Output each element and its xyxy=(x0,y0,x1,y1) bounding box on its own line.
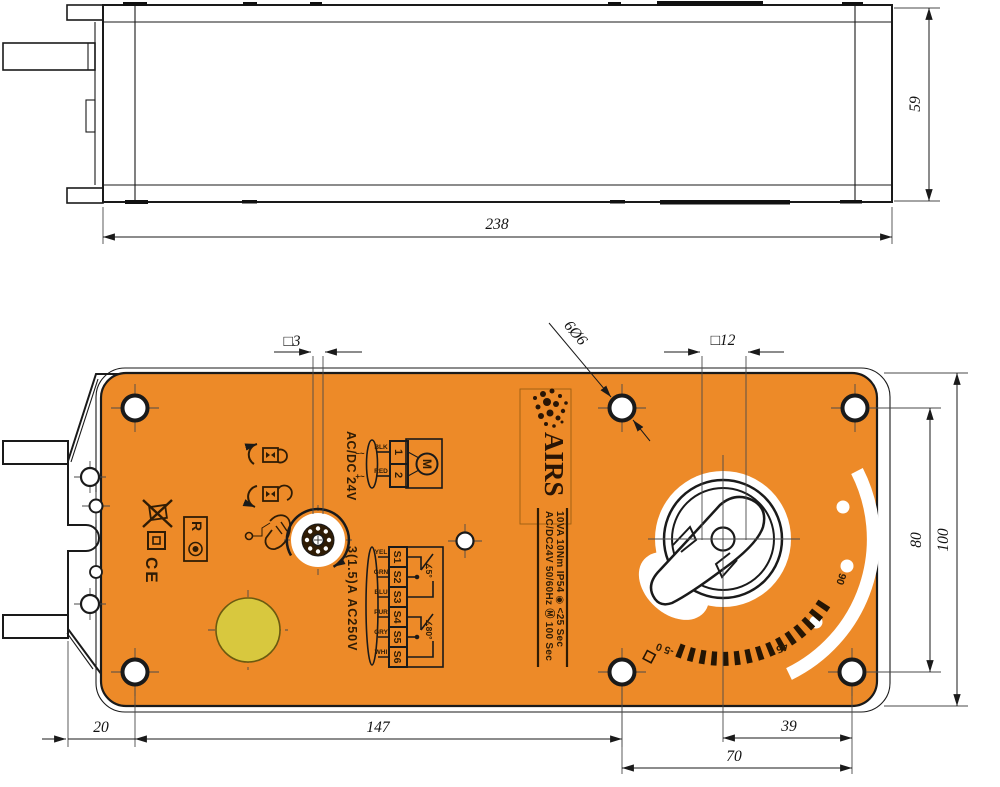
terminal-label: S2 xyxy=(391,571,403,584)
brand-name: AIRS xyxy=(539,432,569,497)
dim-square3-label: □3 xyxy=(283,333,300,350)
terminal-label: S3 xyxy=(391,591,403,604)
nameplate-line2: 10VA 10Nm IP54 ◉ <25 Sec xyxy=(554,511,565,647)
terminal-label: S1 xyxy=(391,551,403,564)
actuator-drawing: 238 59 xyxy=(0,0,1000,787)
top-view-tab-lower xyxy=(67,188,103,203)
bracket-foot xyxy=(86,100,95,132)
wire-label: BLU xyxy=(374,589,388,596)
wire-black-label: BLK xyxy=(374,444,388,451)
aux-rating: 3(1.5)A AC250V xyxy=(345,546,359,651)
dimension-100: 100 xyxy=(884,373,968,706)
dim-20-label: 20 xyxy=(93,719,109,736)
dim-square12-label: □12 xyxy=(711,332,736,349)
dim-39-label: 39 xyxy=(780,718,797,735)
terminal-label: S4 xyxy=(391,611,403,624)
top-view-tab-upper xyxy=(67,5,103,20)
switch-2-angle: ∡80° xyxy=(424,619,434,640)
terminal-label: S5 xyxy=(391,631,403,644)
wire-label: YEL xyxy=(375,549,388,556)
terminal-label: S6 xyxy=(391,651,403,664)
switch-1-angle: ∡5° xyxy=(424,562,434,578)
dim-holes-label: 6Ø6 xyxy=(560,317,590,349)
wire-label: WHI xyxy=(375,649,388,656)
dim-70-label: 70 xyxy=(726,748,742,765)
power-title: AC/DC 24V xyxy=(344,431,358,501)
technical-drawing-page: 238 59 xyxy=(0,0,1000,787)
motor-label: M xyxy=(420,459,434,469)
airs-logo: AIRS xyxy=(520,389,571,525)
dim-100-label: 100 xyxy=(935,528,952,552)
terminal-1-label: 1 xyxy=(392,449,404,455)
top-view: 238 59 xyxy=(3,1,940,244)
bracket-tab-lower xyxy=(3,615,68,638)
housing-outline xyxy=(103,5,892,202)
plus-mark: +~ xyxy=(355,472,365,481)
ce-mark: CE xyxy=(142,557,161,585)
bracket-tab-upper xyxy=(3,441,68,464)
dim-59-label: 59 xyxy=(907,96,924,112)
damper-shaft xyxy=(3,43,95,70)
housing-pads xyxy=(123,1,863,205)
wire-red-label: RED xyxy=(374,468,388,475)
wire-label: GRN xyxy=(374,569,389,576)
dim-238-label: 238 xyxy=(485,216,509,233)
dimension-59: 59 xyxy=(894,8,940,201)
dimension-238: 238 xyxy=(103,207,892,244)
wire-label: PUR xyxy=(374,609,388,616)
reset-label: R xyxy=(189,521,205,531)
dim-147-label: 147 xyxy=(366,719,391,736)
terminal-2-label: 2 xyxy=(392,472,404,478)
dim-80-label: 80 xyxy=(908,532,925,548)
wire-label: GRY xyxy=(374,629,389,636)
minus-mark: –~ xyxy=(355,449,364,458)
front-view: AIRS AC/DC24V 50/60Hz Ⓜ 100 Sec 10VA 10N… xyxy=(3,317,968,774)
